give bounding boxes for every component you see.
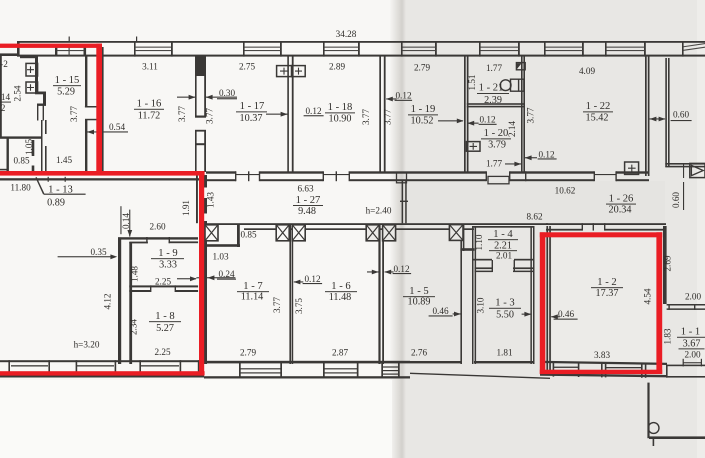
svg-text:1 - 13: 1 - 13 [48,185,73,196]
svg-text:3.77: 3.77 [526,107,536,123]
svg-text:0.46: 0.46 [558,309,574,319]
svg-text:0.12: 0.12 [304,274,320,284]
svg-text:2.60: 2.60 [149,222,165,232]
svg-text:3.67: 3.67 [683,339,701,350]
svg-text:1 - 18: 1 - 18 [328,102,353,113]
svg-text:1.43: 1.43 [206,192,216,208]
svg-text:5.27: 5.27 [156,323,174,334]
svg-text:2.14: 2.14 [507,121,517,137]
svg-text:34.28: 34.28 [336,29,357,39]
svg-text:3.77: 3.77 [177,106,187,122]
svg-text:2: 2 [1,103,6,113]
svg-text:1 - 3: 1 - 3 [495,298,514,309]
svg-text:15.42: 15.42 [586,113,609,124]
svg-text:0.14: 0.14 [121,213,131,229]
svg-text:0.30: 0.30 [219,88,235,98]
svg-text:0.24: 0.24 [218,269,234,279]
svg-text:2.39: 2.39 [484,95,502,106]
svg-text:2.01: 2.01 [496,251,512,261]
svg-text:h=2.40: h=2.40 [366,206,392,216]
svg-text:3.11: 3.11 [142,62,158,72]
svg-text:0.12: 0.12 [395,91,411,101]
svg-text:3.77: 3.77 [272,297,282,313]
svg-text:1.10: 1.10 [474,234,484,250]
svg-text:1.83: 1.83 [663,328,673,344]
svg-text:1 - 2: 1 - 2 [597,277,616,288]
svg-text:3.77: 3.77 [361,109,371,125]
svg-text:1.48: 1.48 [130,266,140,282]
svg-text:2.79: 2.79 [414,63,430,73]
svg-text:3.10: 3.10 [476,297,486,313]
svg-text:1 - 4: 1 - 4 [493,229,513,240]
svg-text:5.29: 5.29 [57,87,75,98]
svg-text:10.89: 10.89 [408,297,431,308]
svg-text:10.62: 10.62 [555,186,576,196]
svg-text:6.63: 6.63 [297,184,313,194]
svg-text:0.35: 0.35 [90,247,106,257]
svg-text:2.25: 2.25 [155,277,171,287]
svg-text:1 - 7: 1 - 7 [243,281,262,292]
svg-text:1.77: 1.77 [486,63,502,73]
svg-text:-2: -2 [0,59,8,69]
svg-text:11.72: 11.72 [138,111,161,122]
svg-text:2.75: 2.75 [239,62,255,72]
svg-text:0.12: 0.12 [393,264,409,274]
svg-text:5.50: 5.50 [496,310,514,321]
svg-text:11.48: 11.48 [329,292,352,303]
svg-text:3.79: 3.79 [488,140,506,151]
svg-text:4.54: 4.54 [643,288,653,304]
svg-text:1 - 22: 1 - 22 [586,101,611,112]
svg-text:2.79: 2.79 [240,348,256,358]
svg-text:0.85: 0.85 [240,230,256,240]
svg-text:2.69: 2.69 [663,255,673,271]
svg-text:4.09: 4.09 [579,66,595,76]
svg-text:1 - 5: 1 - 5 [409,286,428,297]
svg-text:1 - 20: 1 - 20 [484,128,509,139]
svg-text:1.81: 1.81 [496,348,512,358]
svg-text:1 - 21: 1 - 21 [479,83,504,94]
svg-text:1 - 15: 1 - 15 [55,75,80,86]
svg-text:10.52: 10.52 [411,116,434,127]
svg-text:0.54: 0.54 [109,122,125,132]
svg-text:1 - 8: 1 - 8 [155,311,174,322]
svg-text:1.77: 1.77 [486,159,502,169]
svg-text:2.87: 2.87 [332,348,348,358]
svg-text:10.37: 10.37 [240,113,263,124]
svg-text:1.51: 1.51 [467,74,477,90]
svg-text:0.89: 0.89 [47,198,65,209]
svg-text:2.89: 2.89 [329,62,345,72]
svg-text:3.77: 3.77 [205,108,215,124]
svg-text:2.00: 2.00 [684,350,700,360]
svg-text:h=3.20: h=3.20 [74,340,100,350]
svg-text:1 - 1: 1 - 1 [681,327,700,338]
svg-text:8.62: 8.62 [526,212,542,222]
svg-text:1 - 9: 1 - 9 [158,248,177,259]
svg-text:1 - 27: 1 - 27 [296,195,321,206]
svg-text:1.45: 1.45 [56,155,72,165]
svg-text:3.33: 3.33 [159,260,177,271]
svg-text:1 - 17: 1 - 17 [240,101,265,112]
svg-text:10.90: 10.90 [329,114,352,125]
svg-text:0.12: 0.12 [305,106,321,116]
svg-text:11.14: 11.14 [241,292,264,303]
svg-text:0.60: 0.60 [671,192,681,208]
svg-text:11.80: 11.80 [10,183,31,193]
svg-text:14: 14 [1,92,11,102]
svg-text:0.12: 0.12 [538,150,554,160]
svg-text:0.12: 0.12 [479,115,495,125]
svg-text:9.48: 9.48 [298,206,316,217]
svg-text:2.00: 2.00 [685,292,701,302]
svg-text:1 - 26: 1 - 26 [609,194,634,205]
svg-text:20.34: 20.34 [609,205,632,216]
svg-text:2.76: 2.76 [411,348,427,358]
svg-text:1.05: 1.05 [24,139,34,155]
svg-text:1.03: 1.03 [212,252,228,262]
svg-text:1 - 6: 1 - 6 [331,281,350,292]
svg-text:1.91: 1.91 [181,200,191,216]
svg-text:3.83: 3.83 [594,350,610,360]
svg-text:2.25: 2.25 [154,347,170,357]
svg-text:1 - 16: 1 - 16 [137,99,162,110]
svg-text:2.34: 2.34 [129,319,139,335]
svg-text:17.37: 17.37 [596,288,619,299]
svg-text:3.75: 3.75 [294,298,304,314]
svg-text:3.77: 3.77 [383,109,393,125]
svg-text:4.12: 4.12 [103,293,113,309]
svg-text:0.46: 0.46 [432,306,448,316]
svg-text:1 - 19: 1 - 19 [411,104,436,115]
svg-text:0.85: 0.85 [13,156,29,166]
svg-text:2.54: 2.54 [13,85,23,101]
svg-text:3.77: 3.77 [69,106,79,122]
svg-text:0.60: 0.60 [673,110,689,120]
